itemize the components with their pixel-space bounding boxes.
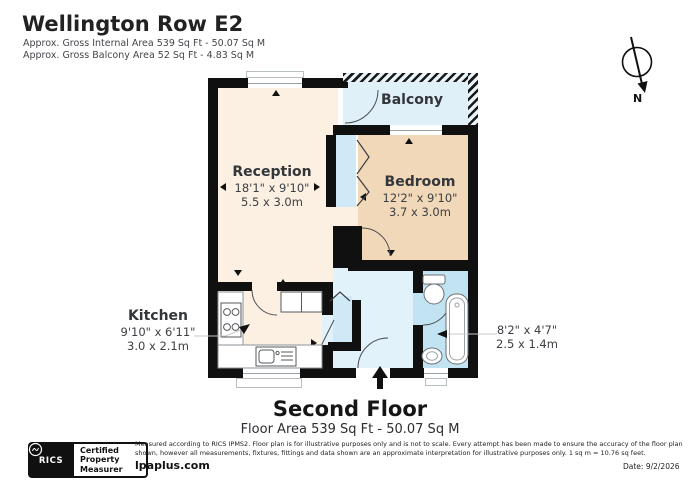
- rics-lion-icon: [28, 442, 43, 457]
- bedroom-label: Bedroom 12'2" x 9'10" 3.7 x 3.0m: [330, 174, 510, 219]
- bathtub-icon: [446, 294, 468, 364]
- date-text: Date: 9/2/2026: [623, 462, 680, 471]
- bedroom-name: Bedroom: [330, 174, 510, 191]
- door-arcs: [252, 90, 451, 368]
- closet-b-door: [330, 292, 350, 301]
- entry-door-arc: [358, 338, 388, 368]
- disclaimer-text: Measured according to RICS IPMS2. Floor …: [135, 440, 697, 458]
- kitchen-door-leaf: [321, 320, 334, 346]
- toilet-icon: [423, 275, 445, 304]
- entry-arrow-icon: [372, 366, 388, 389]
- bedroom-dims-m: 3.7 x 3.0m: [330, 205, 510, 219]
- bathroom-leader-arrow-icon: [437, 330, 447, 338]
- balcony-name: Balcony: [352, 92, 472, 109]
- rics-logo: RICS: [28, 442, 74, 478]
- compass-north-label: N: [633, 92, 642, 105]
- bathroom-fixtures: [422, 275, 468, 364]
- bedroom-dims-ft: 12'2" x 9'10": [330, 191, 510, 205]
- bedroom-door-arc: [362, 228, 390, 256]
- bath-sink-icon: [422, 348, 442, 364]
- kitchen-dims-m: 3.0 x 2.1m: [78, 339, 238, 353]
- kitchen-name: Kitchen: [78, 308, 238, 325]
- kitchen-dims-ft: 9'10" x 6'11": [78, 325, 238, 339]
- kitchen-label: Kitchen 9'10" x 6'11" 3.0 x 2.1m: [78, 308, 238, 353]
- floor-name: Second Floor: [0, 397, 700, 421]
- bathroom-dims-m: 2.5 x 1.4m: [467, 337, 587, 351]
- bathroom-dims-ft: 8'2" x 4'7": [467, 323, 587, 337]
- website-text: lpaplus.com: [135, 459, 210, 472]
- balcony-label: Balcony: [352, 92, 472, 109]
- kitchen-sink-icon: [256, 347, 296, 366]
- kitchen-door-arc: [252, 290, 277, 315]
- rics-wordmark: RICS: [39, 456, 63, 466]
- bathroom-label: 8'2" x 4'7" 2.5 x 1.4m: [467, 323, 587, 351]
- floor-area: Floor Area 539 Sq Ft - 50.07 Sq M: [0, 422, 700, 437]
- compass-icon: [623, 37, 652, 93]
- floorplan-page: Wellington Row E2 Approx. Gross Internal…: [0, 0, 700, 494]
- rics-badge: RICS Certified Property Measurer: [28, 442, 148, 478]
- appliance-icon: [281, 292, 322, 312]
